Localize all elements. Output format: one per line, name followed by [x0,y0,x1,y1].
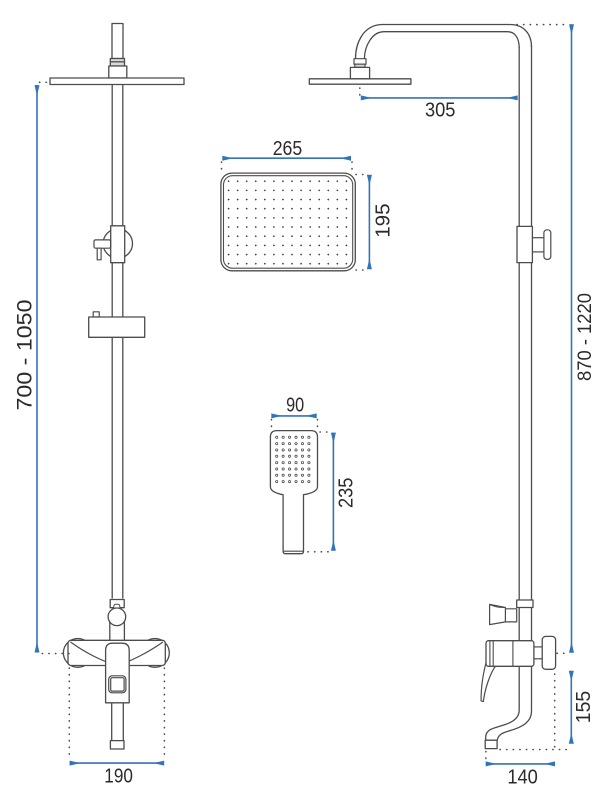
svg-text:195: 195 [373,203,395,237]
svg-text:190: 190 [104,765,133,787]
svg-text:870 - 1220: 870 - 1220 [574,293,596,381]
svg-text:305: 305 [425,100,456,122]
svg-text:155: 155 [573,691,595,724]
svg-text:235: 235 [335,478,357,508]
svg-text:700 - 1050: 700 - 1050 [14,300,37,411]
svg-text:265: 265 [273,138,303,160]
svg-text:90: 90 [286,394,304,416]
svg-text:140: 140 [507,767,538,789]
